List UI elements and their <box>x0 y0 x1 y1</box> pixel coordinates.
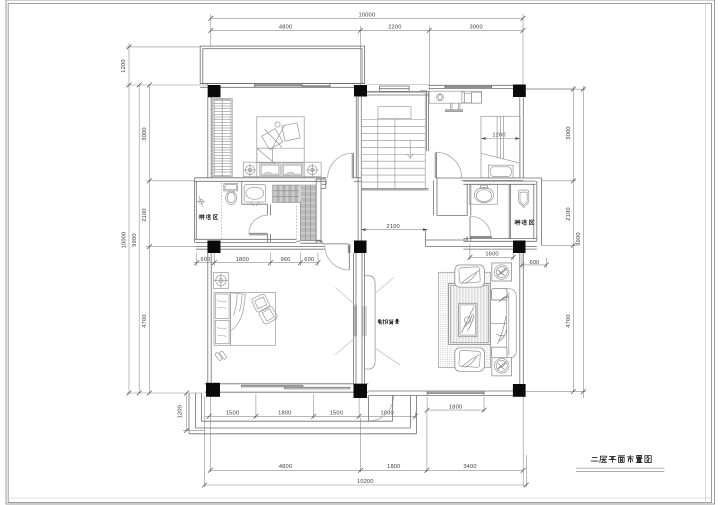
svg-text:9900: 9900 <box>132 233 138 246</box>
svg-text:1200: 1200 <box>121 59 127 72</box>
svg-text:600: 600 <box>200 257 210 263</box>
svg-text:3000: 3000 <box>566 126 572 139</box>
svg-text:10200: 10200 <box>357 479 374 485</box>
svg-text:1800: 1800 <box>387 464 400 470</box>
svg-text:4800: 4800 <box>279 25 292 31</box>
svg-text:3000: 3000 <box>470 25 483 31</box>
svg-text:1800: 1800 <box>236 257 249 263</box>
svg-text:1600: 1600 <box>485 251 498 257</box>
svg-text:1500: 1500 <box>226 411 239 417</box>
svg-text:960: 960 <box>280 257 290 263</box>
svg-text:2100: 2100 <box>566 207 572 220</box>
svg-text:600: 600 <box>304 257 314 263</box>
svg-text:4800: 4800 <box>279 464 292 470</box>
svg-text:2100: 2100 <box>387 224 400 230</box>
svg-text:10000: 10000 <box>121 232 127 249</box>
svg-text:2200: 2200 <box>388 25 401 31</box>
svg-text:10000: 10000 <box>359 13 376 19</box>
svg-text:2100: 2100 <box>142 208 148 221</box>
svg-text:1800: 1800 <box>381 411 394 417</box>
svg-text:600: 600 <box>529 260 539 266</box>
svg-text:1800: 1800 <box>449 404 462 410</box>
svg-text:4700: 4700 <box>566 314 572 327</box>
svg-text:1800: 1800 <box>278 411 291 417</box>
svg-text:4700: 4700 <box>142 314 148 327</box>
svg-text:3400: 3400 <box>463 464 476 470</box>
svg-text:9900: 9900 <box>576 232 582 245</box>
svg-text:3000: 3000 <box>142 127 148 140</box>
svg-text:1200: 1200 <box>178 405 184 418</box>
svg-text:1500: 1500 <box>330 411 343 417</box>
